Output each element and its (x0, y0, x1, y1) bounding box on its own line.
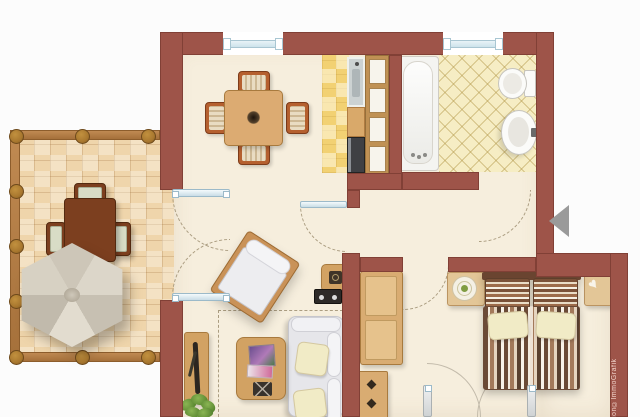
cabinet-cell (369, 88, 386, 113)
door-hinge (172, 295, 179, 302)
tray (253, 382, 272, 396)
terrace-post (9, 184, 24, 199)
kitchen-counter (347, 107, 365, 137)
kitchen-floor (322, 55, 349, 173)
bed-pillow (487, 310, 529, 340)
window-sill (227, 40, 279, 48)
terrace-post (75, 129, 90, 144)
toilet (498, 66, 538, 102)
mattress-seam (530, 306, 533, 390)
parasol (16, 242, 128, 348)
balcony-door-arc (427, 363, 481, 417)
speaker-dot (319, 295, 324, 300)
window-sill (447, 40, 499, 48)
washbasin (499, 108, 539, 158)
wall-kitchen-bottom (347, 173, 402, 190)
wall-bath-bottom (402, 172, 479, 190)
nightstand-left (447, 272, 485, 306)
wall-left-upper (160, 32, 183, 190)
kitchen-sink-unit (347, 57, 365, 107)
wall-living-bedroom-divider (342, 253, 360, 417)
basin-inner (508, 117, 529, 147)
terrace-post (75, 350, 90, 365)
bathroom-window (443, 32, 503, 55)
wardrobe-handle (367, 380, 377, 390)
gallery-prev-arrow-icon[interactable] (549, 205, 569, 237)
sofa-backroll (327, 332, 341, 377)
window-cap (275, 38, 283, 50)
cabinet-cell (369, 117, 386, 142)
terrace-post (141, 129, 156, 144)
terrace-post (141, 350, 156, 365)
chair-cushion (242, 75, 266, 90)
wall-hall-left (347, 190, 360, 208)
door-hinge (223, 295, 230, 302)
wardrobe-handle (367, 399, 377, 409)
double-bed (482, 272, 581, 390)
terrace-door-leaf-top (172, 189, 230, 197)
wardrobe (358, 371, 388, 417)
door-hinge (223, 191, 230, 198)
window-cap (223, 38, 231, 50)
window-cap (495, 38, 503, 50)
sofa-pillow (292, 387, 327, 417)
stool-bowl-ring (332, 274, 339, 281)
wall-kitchen-bath-divider (389, 55, 402, 174)
sofa-armrest (291, 317, 341, 332)
speaker-dot (332, 295, 337, 300)
dining-table (224, 90, 283, 146)
sink-faucet (355, 62, 359, 66)
bathroom-door-swing-arc (479, 190, 531, 242)
dining-window (223, 32, 283, 55)
dashed-dimension-line-h (218, 310, 343, 311)
wall-bedroom-top-left (360, 257, 403, 272)
chair-cushion (290, 106, 305, 130)
bathtub (397, 56, 439, 171)
table-knot (247, 111, 260, 124)
nightstand-right: ♥ (584, 272, 613, 306)
cabinet-cell (369, 59, 386, 84)
tub-basin (403, 61, 433, 164)
toilet-bowl-inner (503, 73, 522, 94)
wall-right-upper (536, 32, 554, 277)
dining-chair-right (286, 102, 309, 134)
heart-decor: ♥ (585, 276, 601, 293)
magazine (247, 364, 274, 378)
kitchen-cabinet-column (365, 55, 389, 174)
bedroom-door-swing-arc (403, 264, 449, 310)
wall-bedroom-top-right (448, 257, 536, 272)
floor-plan-image: ♥ ion©ImmoGrafik (0, 0, 640, 417)
sofa-pillow (294, 341, 330, 377)
tub-faucet (411, 153, 415, 157)
plate-center (461, 285, 468, 292)
door-hinge (425, 385, 432, 392)
watermark: ion©ImmoGrafik (611, 338, 618, 417)
window-cap (443, 38, 451, 50)
wall-left-lower (160, 300, 183, 417)
tub-faucet (417, 155, 421, 159)
cabinet-cell (369, 146, 386, 172)
sideboard-decor (193, 342, 201, 394)
bed-pillow (535, 311, 577, 341)
door-hinge (172, 191, 179, 198)
balcony-door-leaf-right (527, 385, 536, 417)
tub-faucet (423, 153, 427, 157)
sofa-backroll (327, 378, 341, 417)
sofa (288, 316, 344, 417)
stereo (314, 289, 342, 304)
chair-cushion (242, 146, 266, 161)
chair-cushion (209, 106, 224, 130)
bench-cushion (365, 276, 397, 316)
terrace-post (9, 129, 24, 144)
door-hinge (529, 385, 536, 392)
terrace-door-leaf-bottom (172, 293, 230, 301)
living-room-door-leaf (300, 201, 347, 208)
bench-cushion (365, 320, 397, 360)
dashed-dimension-line-v (218, 310, 219, 417)
stove (347, 137, 365, 173)
door-swing-arc (300, 205, 347, 252)
terrace-post (9, 350, 24, 365)
parasol-hub (64, 288, 80, 302)
plant (179, 393, 217, 417)
bedroom-bench (360, 271, 403, 365)
sink-basin (352, 69, 360, 97)
coffee-table (236, 337, 286, 400)
balcony-door-leaf-left (423, 385, 432, 417)
